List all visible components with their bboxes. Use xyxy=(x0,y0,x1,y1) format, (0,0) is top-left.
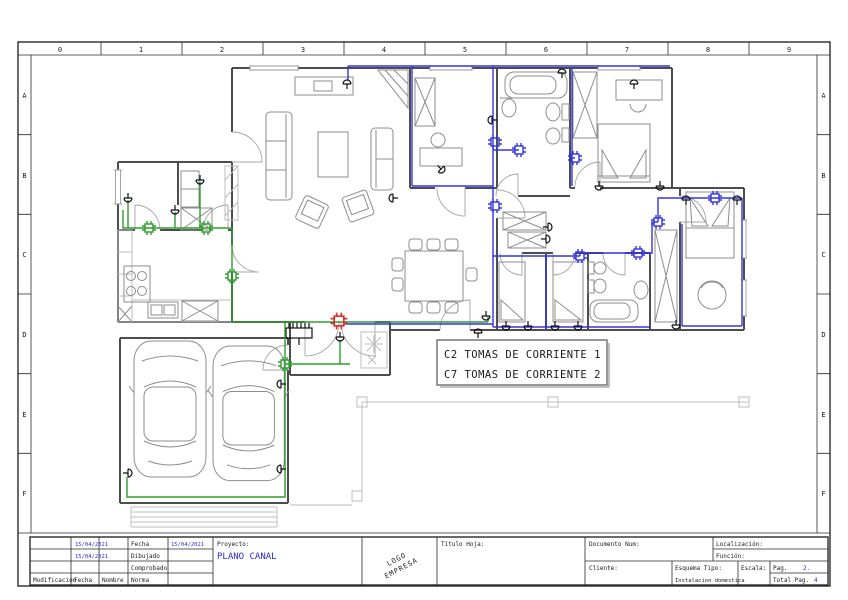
tv-unit xyxy=(295,77,353,95)
ruler-row-label: D xyxy=(821,331,825,339)
ruler-col-label: 3 xyxy=(301,46,305,54)
sofa xyxy=(266,112,292,200)
stove xyxy=(124,266,150,302)
client-label: Cliente: xyxy=(589,565,618,572)
left-ruler: A B C D E F xyxy=(18,92,31,498)
window xyxy=(250,65,298,71)
kitchen-sink xyxy=(148,302,178,318)
wardrobe xyxy=(573,72,597,138)
toilet xyxy=(546,103,569,121)
socket-symbol xyxy=(558,69,566,78)
page-label: Pag. xyxy=(773,565,787,572)
socket-symbol xyxy=(482,311,490,320)
bath-sink xyxy=(500,98,518,117)
sheet-title-label: Título Hoja: xyxy=(441,541,484,548)
study-wardrobe xyxy=(415,78,435,126)
corner-unit xyxy=(378,70,408,108)
coffee-table xyxy=(318,132,348,177)
drawing-sheet: 0 1 2 3 4 5 6 7 8 9 A B C D E F A B C D … xyxy=(0,0,848,600)
approval-table: Fecha 15/04/2021 Dibujado Comprobado Nor… xyxy=(131,541,204,584)
title-block: 15/04/2021 15/04/2021 Modificación Fecha… xyxy=(30,537,828,585)
terrace xyxy=(290,397,749,505)
approval-label: Comprobado xyxy=(131,565,168,572)
total-pages-value: 4 xyxy=(814,577,818,584)
schema-type-value: Instalacion domestica xyxy=(675,578,745,584)
socket-symbol xyxy=(343,80,351,89)
junction-box-symbol xyxy=(488,199,502,213)
location-label: Localización: xyxy=(716,541,763,548)
page-cell: Pag. 2. xyxy=(773,565,810,572)
single-bed xyxy=(499,262,525,322)
document-num-label: Documento Num: xyxy=(589,541,640,548)
approval-value: 15/04/2021 xyxy=(171,542,204,548)
ruler-col-label: 0 xyxy=(58,46,62,54)
location-cell: Localización: xyxy=(716,541,763,548)
ruler-row-label: C xyxy=(22,251,26,259)
socket-outlets xyxy=(123,69,741,477)
ruler-row-label: A xyxy=(22,92,27,100)
ruler-row-label: C xyxy=(821,251,825,259)
wardrobe xyxy=(655,230,677,322)
ruler-row-label: A xyxy=(821,92,826,100)
legend-line-c2: C2 TOMAS DE CORRIENTE 1 xyxy=(444,349,601,361)
bathtub xyxy=(505,72,567,98)
sofa-small xyxy=(371,128,393,190)
bidet xyxy=(546,128,569,144)
ruler-row-label: F xyxy=(821,490,825,498)
page-value: 2. xyxy=(803,565,810,572)
legend-line-c7: C7 TOMAS DE CORRIENTE 2 xyxy=(444,369,601,381)
armchair xyxy=(295,195,330,230)
closet xyxy=(508,232,546,248)
logo-cell: LOGO EMPRESA xyxy=(379,547,420,580)
function-cell: Función: xyxy=(716,553,745,560)
socket-symbol xyxy=(630,80,638,89)
socket-symbol xyxy=(672,320,680,329)
revision-header-modification: Modificación xyxy=(33,577,77,584)
ruler-col-label: 7 xyxy=(625,46,629,54)
round-chair xyxy=(698,281,726,309)
total-pages-label: Total Pag. xyxy=(773,577,809,584)
bathtub xyxy=(590,300,638,322)
document-cell: Documento Num: xyxy=(589,541,640,548)
revision-header-name: Nombre xyxy=(102,577,124,584)
double-bed xyxy=(598,124,650,182)
ruler-row-label: D xyxy=(22,331,26,339)
schema-type-label: Esquema Tipo: xyxy=(675,565,722,572)
approval-label: Norma xyxy=(131,577,149,584)
total-pages-cell: Total Pag. 4 xyxy=(773,577,818,584)
socket-symbol xyxy=(389,194,398,202)
project-label: Proyecto: xyxy=(217,541,250,548)
drawing-frame xyxy=(18,42,830,586)
kitchen-cabinet xyxy=(182,301,218,321)
ruler-col-label: 1 xyxy=(139,46,143,54)
socket-symbol xyxy=(541,235,550,243)
scale-label: Escala: xyxy=(741,565,766,572)
plant xyxy=(361,332,387,368)
ruler-col-label: 4 xyxy=(382,46,386,54)
bidet xyxy=(588,262,606,274)
armchair xyxy=(341,189,374,222)
right-ruler: A B C D E F xyxy=(817,92,830,498)
cad-floor-plan: 0 1 2 3 4 5 6 7 8 9 A B C D E F A B C D … xyxy=(0,0,848,600)
ruler-col-label: 6 xyxy=(544,46,548,54)
bath-sink xyxy=(634,281,648,299)
client-cell: Cliente: xyxy=(589,565,618,572)
ruler-row-label: E xyxy=(22,411,26,419)
project-name: PLANO CANAL xyxy=(217,552,277,562)
function-label: Función: xyxy=(716,553,745,560)
toilet xyxy=(588,279,606,293)
socket-symbol xyxy=(123,469,132,477)
window xyxy=(114,170,122,204)
windows xyxy=(114,65,747,316)
dining-table xyxy=(405,251,463,301)
car xyxy=(208,346,289,481)
single-bed xyxy=(553,262,583,322)
revision-date: 15/04/2021 xyxy=(75,554,108,560)
junction-box-symbol xyxy=(488,135,502,149)
top-ruler: 0 1 2 3 4 5 6 7 8 9 xyxy=(58,42,791,55)
ruler-row-label: F xyxy=(22,490,26,498)
ruler-row-label: E xyxy=(821,411,825,419)
ruler-col-label: 2 xyxy=(220,46,224,54)
revision-date: 15/04/2021 xyxy=(75,542,108,548)
floor-plan: C2 TOMAS DE CORRIENTE 1 C7 TOMAS DE CORR… xyxy=(114,65,749,527)
socket-symbol xyxy=(488,116,497,124)
revision-table: 15/04/2021 15/04/2021 Modificación Fecha… xyxy=(33,542,124,584)
ruler-col-label: 8 xyxy=(706,46,710,54)
ruler-row-label: B xyxy=(22,172,26,180)
legend-box: C2 TOMAS DE CORRIENTE 1 C7 TOMAS DE CORR… xyxy=(437,340,609,387)
bedroom-desk xyxy=(616,80,662,112)
ruler-col-label: 9 xyxy=(787,46,791,54)
entrance-steps xyxy=(131,507,277,527)
ruler-row-label: B xyxy=(821,172,825,180)
revision-header-date: Fecha xyxy=(74,577,92,584)
socket-symbol xyxy=(435,163,447,175)
project-cell: Proyecto: PLANO CANAL xyxy=(217,541,277,562)
schema-cell: Esquema Tipo: Instalacion domestica xyxy=(675,565,745,584)
study-desk xyxy=(420,133,462,166)
double-bed xyxy=(686,192,734,258)
furniture xyxy=(118,70,734,481)
scale-cell: Escala: xyxy=(741,565,766,572)
approval-label: Dibujado xyxy=(131,553,160,560)
ruler-col-label: 5 xyxy=(463,46,467,54)
approval-label: Fecha xyxy=(131,541,149,548)
car xyxy=(129,341,211,477)
sheet-title-cell: Título Hoja: xyxy=(441,541,484,548)
entry-cabinets xyxy=(181,166,238,230)
